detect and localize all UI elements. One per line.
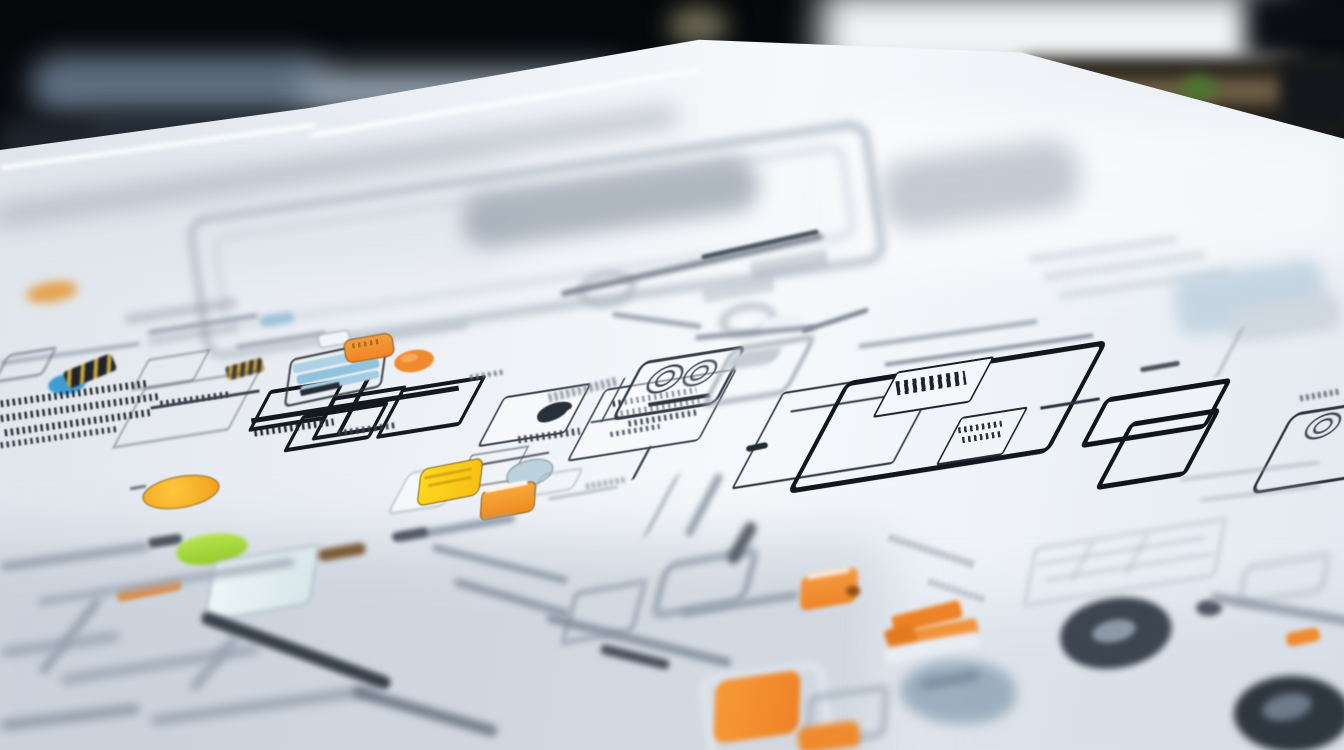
photo-canvas	[0, 0, 1344, 750]
background-dark-corner	[1245, 0, 1344, 60]
desk-object-dark-end	[1280, 60, 1344, 130]
blue-gray-blob	[900, 660, 1016, 724]
teardrop-dot	[560, 402, 572, 410]
orange-square-shadow-dot	[846, 586, 860, 596]
orange-big-square-icon	[713, 670, 800, 745]
background-streak	[30, 55, 330, 115]
